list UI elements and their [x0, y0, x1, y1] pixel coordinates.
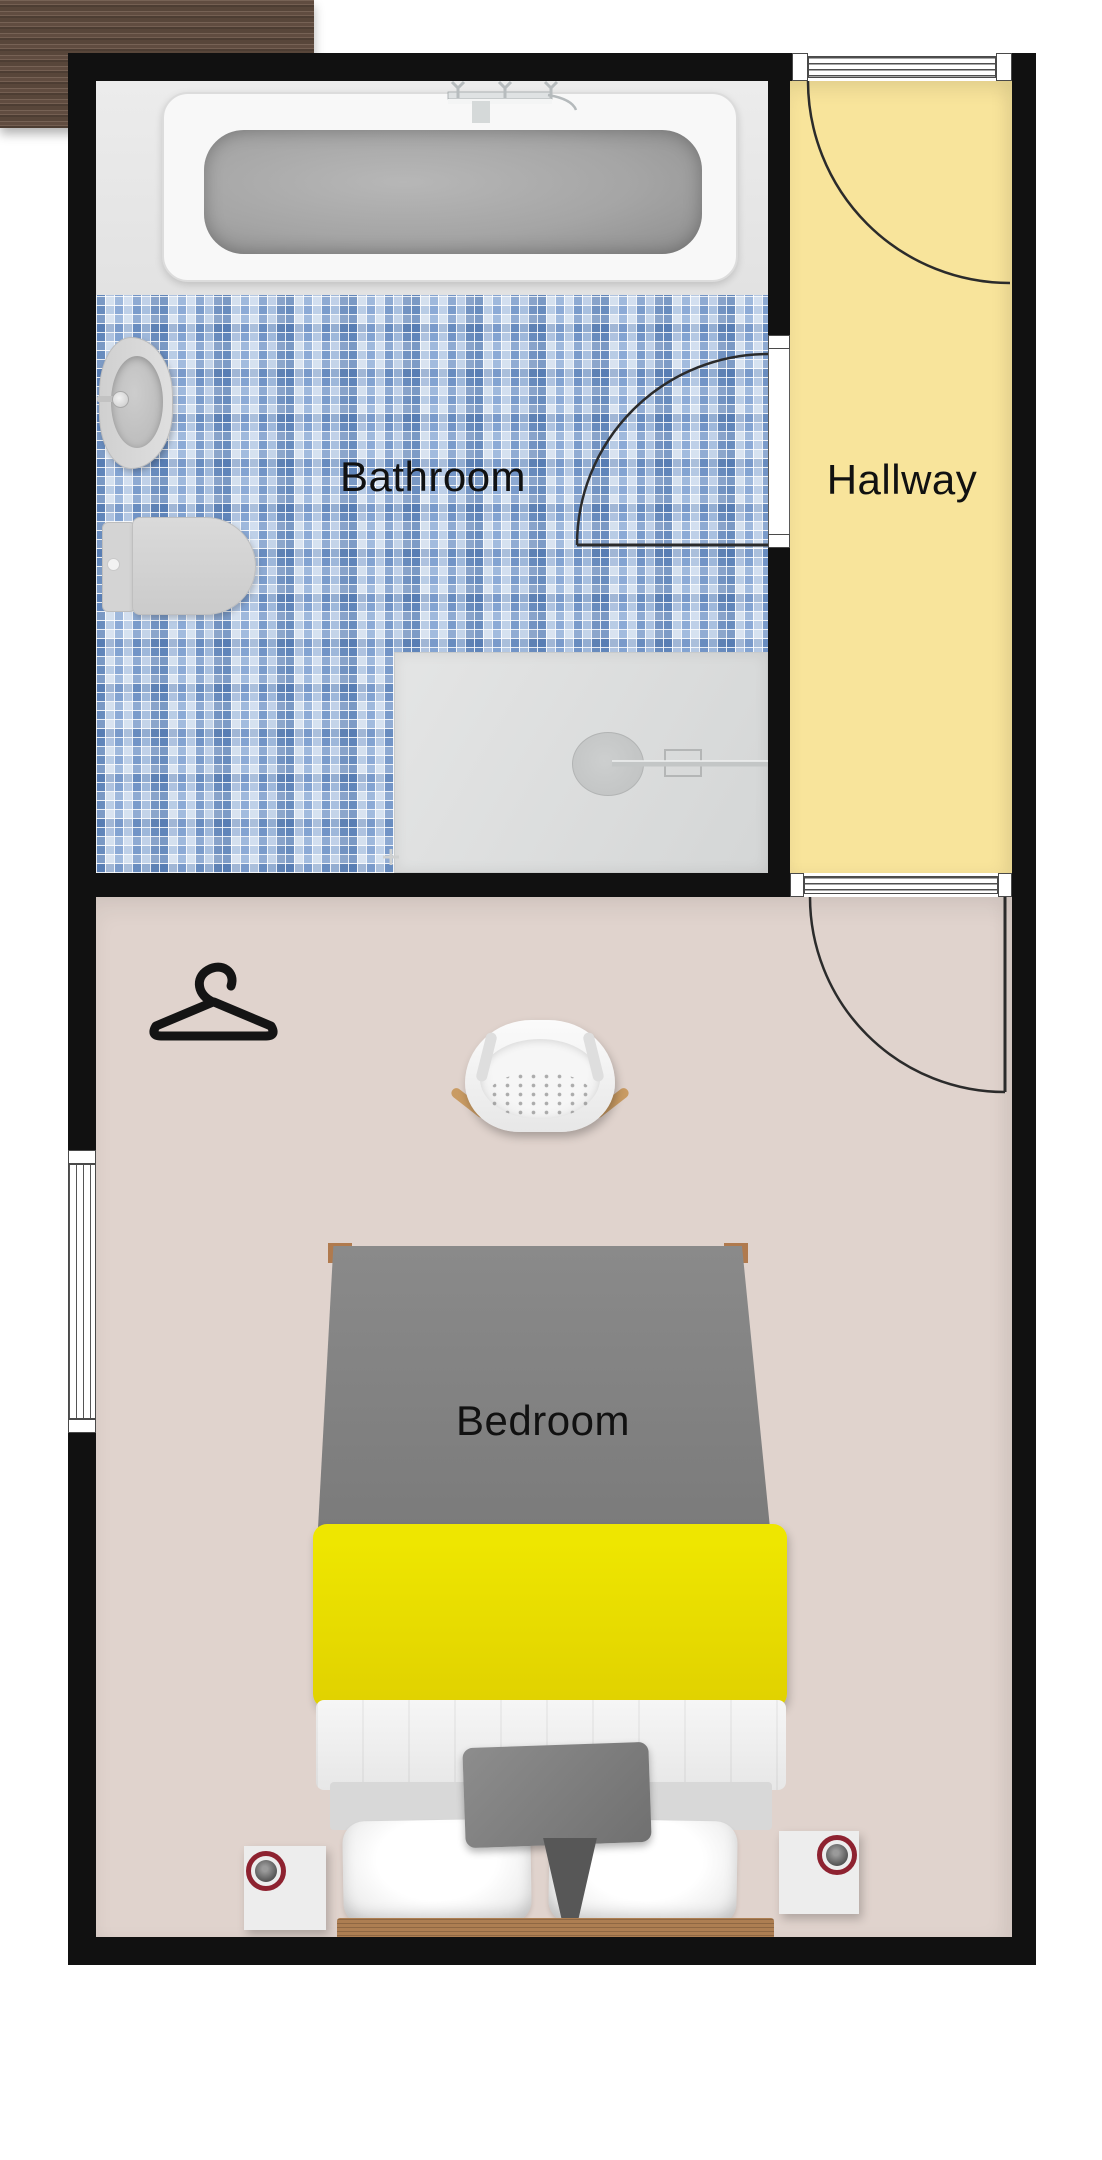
- bathroom-door-swing-arc: [577, 354, 768, 545]
- entry-door-swing-arc: [808, 81, 1010, 283]
- bathroom-label: Bathroom: [340, 453, 526, 501]
- bathtub-faucet-icon: [448, 82, 576, 123]
- plan-linework: [0, 0, 1102, 2160]
- shower-arm-icon: [612, 761, 768, 764]
- clothes-hanger-icon: [154, 967, 273, 1036]
- bedroom-door-swing-arc: [810, 897, 1005, 1092]
- bedroom-label: Bedroom: [456, 1397, 630, 1445]
- shower-valve-icon: [383, 849, 399, 865]
- floorplan-canvas: Bathroom Hallway Bedroom: [0, 0, 1102, 2160]
- hallway-label: Hallway: [827, 456, 978, 504]
